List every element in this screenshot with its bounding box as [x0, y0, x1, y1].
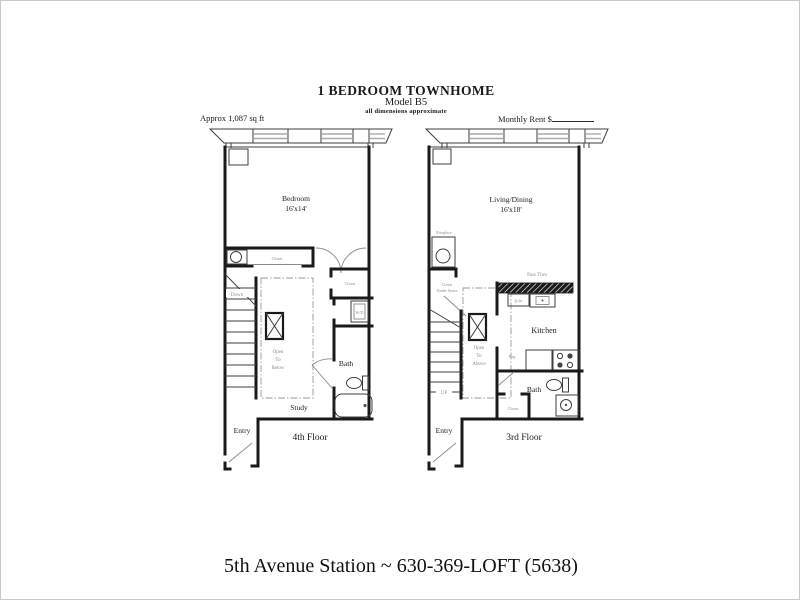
fireplace-label: Fireplace: [436, 230, 452, 235]
laundry-closet: W/D: [334, 298, 372, 326]
bath-closet-label: Closet: [508, 406, 520, 411]
bath-label-4th: Bath: [339, 359, 353, 368]
refrigerator: [526, 350, 552, 370]
bathroom-4th: Bath: [312, 326, 372, 419]
shaft-x-box: [266, 313, 283, 339]
open-to-below-area: Open To Below: [261, 278, 313, 398]
bath-closet: Closet: [497, 371, 529, 419]
entry-door-leaf-3rd: [433, 443, 456, 462]
kitchen-sink: [530, 294, 555, 307]
rent-blank-line: [552, 112, 594, 122]
bedroom-label: Bedroom: [282, 194, 310, 203]
open-to-below-line1: Open: [273, 350, 284, 355]
bedroom-closet-label: Closet: [272, 256, 284, 261]
living-dining-dimensions: 16'x18': [500, 205, 522, 214]
open-to-above-line1: Open: [474, 346, 485, 351]
open-to-below-line3: Below: [271, 366, 284, 371]
bath-door-leaf: [499, 372, 514, 385]
toilet-3rd: [547, 378, 569, 392]
pass-thru-counter: [496, 283, 573, 293]
kitchen: Pass Thru D/W Kitchen Frig: [496, 273, 582, 371]
square-footage: Approx 1,087 sq ft: [200, 113, 264, 123]
stairs-up-label: UP: [441, 391, 448, 396]
window-band-4th: [210, 129, 392, 148]
kitchen-label: Kitchen: [531, 326, 556, 335]
open-to-above-line3: Above: [472, 362, 486, 367]
window-glass-lines: [470, 134, 601, 139]
floorplan-sheet: 1 BEDROOM TOWNHOME Model B5 all dimensio…: [0, 0, 800, 600]
property-footer: 5th Avenue Station ~ 630-369-LOFT (5638): [1, 555, 800, 578]
column: [433, 149, 451, 164]
stairs-down: Down: [225, 274, 256, 398]
column: [229, 149, 248, 165]
window-glass-lines: [254, 134, 385, 139]
hall-closet-label: Closet: [345, 281, 357, 286]
stairs-down-label: Down: [231, 293, 244, 298]
study-label: Study: [290, 403, 308, 412]
bedroom-dimensions: 16'x14': [285, 204, 307, 213]
fridge-label: Frig: [509, 354, 517, 359]
fireplace: Fireplace: [429, 230, 456, 276]
stove: [553, 350, 579, 370]
closet-under-stairs-line2: Under Stairs: [436, 288, 457, 293]
floorplan-3rd-floor: Living/Dining 16'x18' Fireplace Closet U…: [416, 126, 626, 481]
bathtub: [335, 394, 372, 417]
entry-label-3rd: Entry: [436, 426, 453, 435]
toilet-4th: [347, 376, 369, 390]
bath-door-leaf: [312, 365, 332, 388]
open-to-below-line2: To: [275, 358, 281, 363]
window-band-3rd: [426, 129, 608, 148]
monthly-rent-label: Monthly Rent $: [498, 114, 552, 124]
floorplan-4th-floor: Bedroom 16'x14' Closet Down: [196, 126, 406, 481]
plan-model: Model B5: [1, 97, 800, 108]
shaft-x-box: [469, 314, 486, 340]
dishwasher-label: D/W: [514, 299, 522, 304]
closet-under-stairs-line1: Closet: [442, 282, 454, 287]
entry-door-leaf-4th: [229, 443, 252, 462]
open-to-above-line2: To: [476, 354, 482, 359]
bedroom-closet: Closet: [225, 248, 313, 266]
pass-thru-label: Pass Thru: [527, 273, 547, 278]
floor-name-4th: 4th Floor: [292, 433, 328, 443]
plan-disclaimer: all dimensions approximate: [1, 108, 800, 115]
bathroom-3rd: Bath Closet: [497, 371, 578, 419]
stairs-up: UP: [429, 309, 461, 398]
monthly-rent-line: Monthly Rent $: [498, 112, 594, 124]
washer-dryer-label: W/D: [355, 310, 363, 315]
floor-name-3rd: 3rd Floor: [506, 433, 542, 443]
entry-label-4th: Entry: [234, 426, 251, 435]
bath-sink: [556, 395, 578, 416]
open-to-above-area: Open To Above: [463, 288, 511, 398]
hall-closet: Closet: [331, 269, 369, 298]
living-dining-label: Living/Dining: [490, 195, 533, 204]
